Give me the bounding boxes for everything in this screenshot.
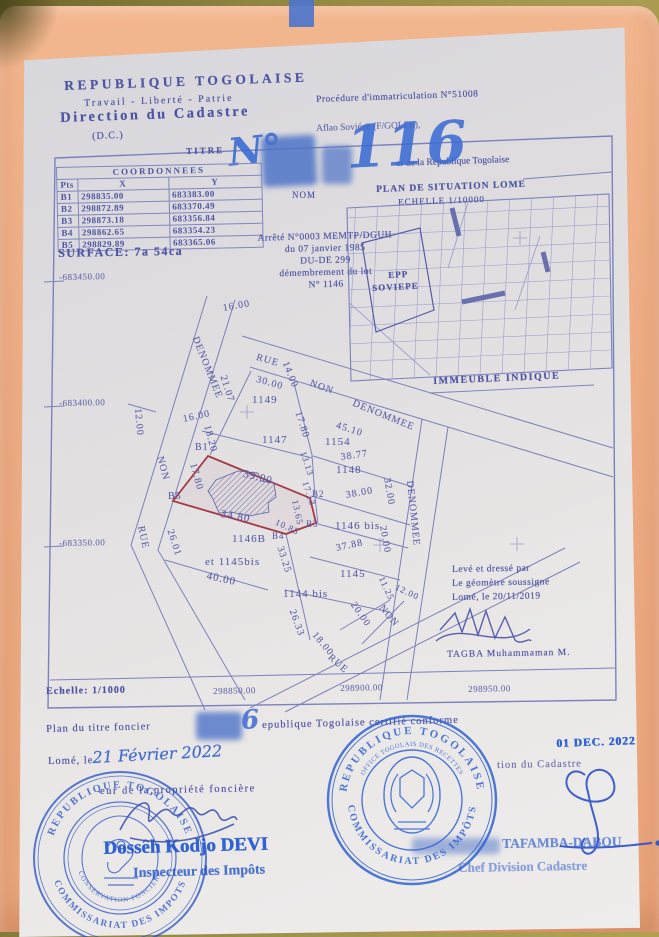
blue-tab-sticker [289, 0, 314, 27]
redaction-smudge [196, 712, 242, 740]
office-abbr: (D.C.) [92, 130, 124, 142]
plan-label: 1146B [232, 533, 266, 545]
table-cell: B2 [57, 203, 78, 215]
surveyor-line1: Levé et dressé par [452, 564, 530, 575]
surveyor-line2: Le géomètre soussigné [452, 577, 550, 589]
plan-label: 1149 [252, 394, 278, 406]
plan-label: B5 [168, 491, 182, 502]
photo-scene: REPUBLIQUE TOGOLAISE Travail - Liberté -… [0, 0, 659, 937]
plan-label: 1154 [325, 436, 351, 448]
axis-label: -683350.00 [59, 537, 105, 548]
plan-label: B2 [312, 489, 325, 499]
plan-label: 1145 [340, 568, 366, 580]
title-number-value: 116 [344, 108, 468, 182]
redaction-smudge [261, 135, 318, 188]
nom-label: NOM [292, 190, 316, 200]
plan-label: 1147 [262, 434, 288, 446]
axis-label: -683400.00 [59, 397, 105, 408]
axis-label: -683450.00 [59, 271, 105, 282]
table-cell: B3 [58, 215, 79, 227]
cadastre-reference: tion du Cadastre [497, 759, 582, 771]
axis-label: 298950.00 [468, 683, 511, 694]
plan-label: B4 [272, 531, 285, 541]
certification-number-tail: 6 [240, 705, 260, 736]
plan-label: 1148 [336, 464, 362, 476]
plan-label: 1144 bis [283, 588, 328, 600]
plan-label: B1 [195, 442, 209, 453]
col-header-pts: Pts [57, 179, 78, 191]
axis-label: 298850.00 [213, 685, 256, 696]
plan-label: 12.00 [132, 408, 145, 436]
plan-scale-label: Echelle: 1/1000 [46, 685, 126, 697]
official-left-name: Dossêh Kodjo DEVI [103, 834, 268, 860]
official-right-title: Chef Division Cadastre [458, 858, 587, 876]
surface-label: SURFACE: 7a 54ca [58, 244, 183, 261]
place-label: Lomé, le [48, 755, 94, 767]
table-cell: B1 [57, 191, 78, 203]
plan-label: B3 [306, 519, 319, 529]
official-right-name: TAFAMBA-DABOU [502, 834, 622, 852]
surveyor-line3: Lomé, le 20/11/2019 [452, 591, 541, 603]
school-label-line1: EPP [388, 269, 408, 280]
plan-label: 1146 bis [335, 520, 380, 532]
name-smudge [412, 838, 500, 854]
doc-type-label: TITRE [186, 145, 224, 156]
plan-label: et 1145bis [205, 556, 260, 568]
axis-label: 298900.00 [340, 682, 383, 693]
table-cell: B4 [58, 227, 79, 239]
